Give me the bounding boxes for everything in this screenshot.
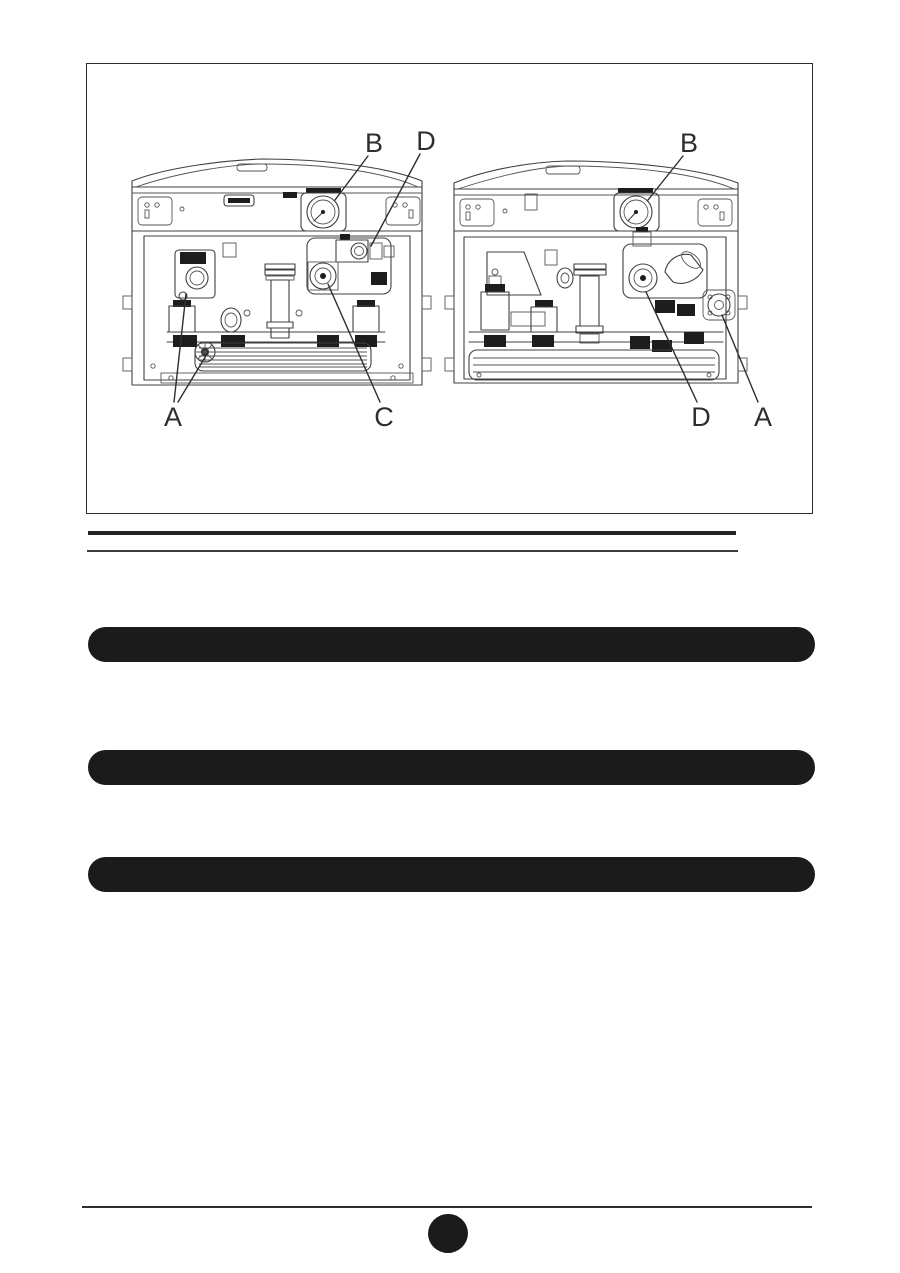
bottom-panel (469, 350, 719, 380)
callout-right-D: D (691, 402, 711, 432)
gas-valve-assembly-icon (307, 234, 394, 294)
page-number-dot (424, 1210, 471, 1256)
circulation-pump-icon (175, 250, 215, 300)
footer-rule (82, 1206, 812, 1208)
hydraulic-manifold-icon (469, 332, 723, 352)
expansion-valve-icon (481, 269, 509, 330)
document-page: B D A C B D A (0, 0, 900, 1273)
redacted-heading-bar-2 (88, 750, 815, 785)
flue-pipe-icon (574, 264, 606, 343)
callout-left-C: C (374, 402, 394, 432)
redacted-heading-bar-3 (88, 857, 815, 892)
callout-right-B: B (680, 128, 698, 158)
double-rule-thick (88, 531, 736, 535)
flue-pipe-icon (265, 264, 295, 338)
heat-exchanger-icon (195, 343, 371, 371)
double-rule-thin (87, 550, 738, 552)
pump-valve-assembly-icon (623, 227, 707, 316)
figure-frame: B D A C B D A (86, 63, 813, 514)
boiler-diagram: B D A C B D A (87, 64, 810, 511)
redacted-heading-bar-1 (88, 627, 815, 662)
callout-left-D: D (416, 126, 436, 156)
callout-left-B: B (365, 128, 383, 158)
left-boiler-drawing (123, 159, 431, 385)
callout-right-A: A (754, 402, 772, 432)
right-boiler-drawing (445, 161, 747, 383)
filling-valve-icon (703, 290, 735, 320)
callout-left-A: A (164, 402, 182, 432)
drain-valve-icon (195, 342, 215, 362)
